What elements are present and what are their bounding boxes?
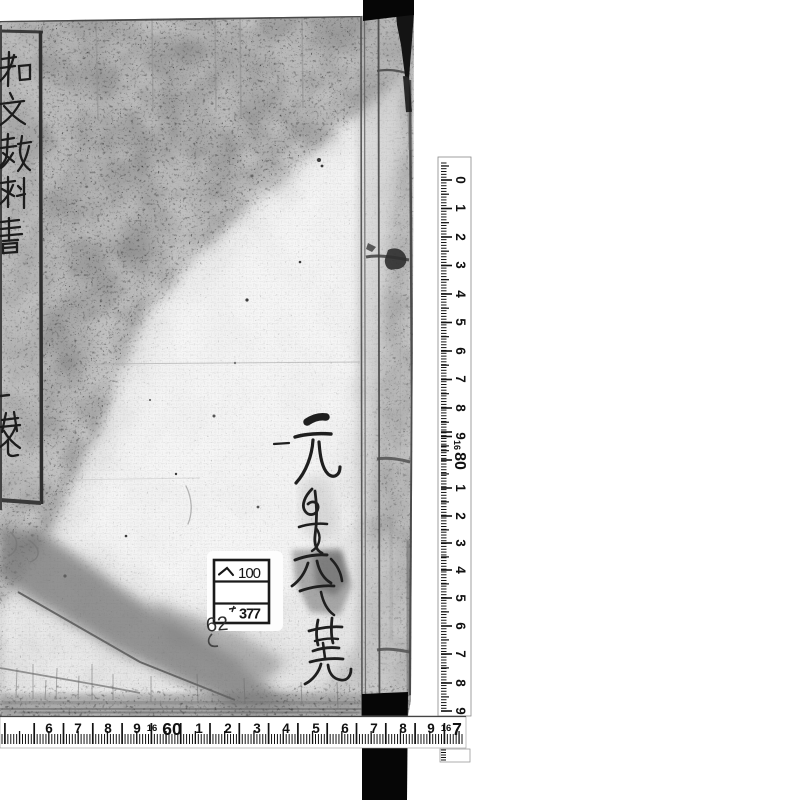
svg-text:8: 8 — [399, 721, 407, 736]
svg-text:7: 7 — [453, 650, 468, 658]
svg-text:7: 7 — [452, 719, 462, 739]
svg-text:16: 16 — [452, 440, 462, 450]
svg-text:80: 80 — [451, 452, 468, 470]
svg-text:5: 5 — [312, 721, 320, 736]
svg-text:62: 62 — [205, 613, 229, 637]
svg-text:9: 9 — [453, 432, 468, 440]
svg-text:3: 3 — [253, 721, 261, 736]
svg-text:7: 7 — [453, 375, 468, 383]
svg-text:6: 6 — [45, 721, 53, 736]
svg-text:6: 6 — [341, 721, 349, 736]
svg-text:8: 8 — [104, 721, 112, 736]
svg-text:4: 4 — [453, 290, 468, 298]
svg-text:7: 7 — [74, 721, 82, 736]
svg-text:3: 3 — [453, 539, 468, 547]
svg-text:9: 9 — [133, 721, 141, 736]
svg-text:7: 7 — [370, 721, 378, 736]
svg-text:60: 60 — [162, 719, 182, 739]
svg-text:377: 377 — [239, 607, 261, 623]
svg-text:1: 1 — [453, 484, 468, 492]
svg-text:0: 0 — [453, 176, 468, 184]
svg-text:6: 6 — [453, 622, 468, 630]
svg-text:8: 8 — [453, 404, 468, 412]
svg-text:1: 1 — [453, 204, 468, 212]
svg-text:1: 1 — [195, 721, 203, 736]
svg-text:5: 5 — [453, 594, 468, 602]
svg-text:16: 16 — [441, 723, 452, 734]
svg-text:4: 4 — [453, 566, 468, 574]
svg-text:9: 9 — [453, 707, 468, 715]
svg-text:4: 4 — [282, 721, 290, 736]
svg-text:2: 2 — [224, 721, 232, 736]
svg-text:16: 16 — [147, 723, 158, 734]
svg-text:5: 5 — [453, 318, 468, 326]
svg-text:6: 6 — [453, 347, 468, 355]
svg-text:3: 3 — [453, 261, 468, 269]
svg-text:2: 2 — [453, 233, 468, 241]
svg-text:2: 2 — [453, 512, 468, 520]
svg-text:100: 100 — [238, 565, 261, 582]
svg-text:8: 8 — [453, 679, 468, 687]
svg-text:9: 9 — [427, 721, 435, 736]
